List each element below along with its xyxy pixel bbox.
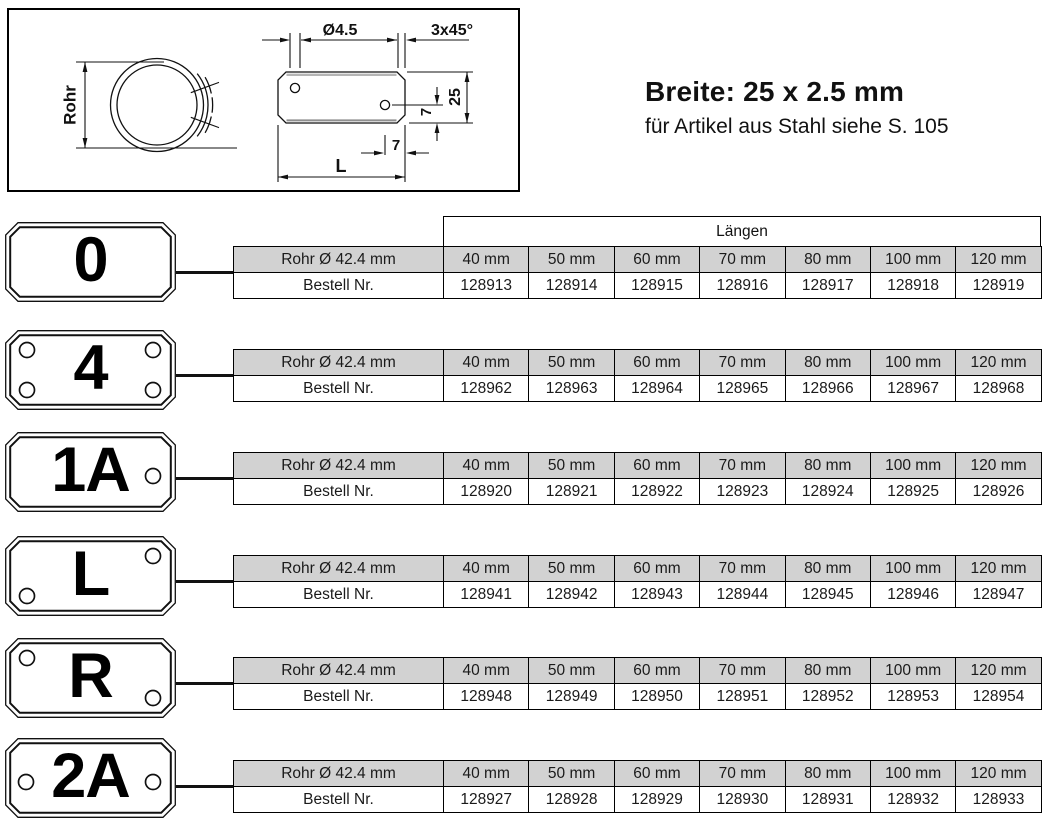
order-number: 128945: [785, 582, 870, 608]
order-table: Rohr Ø 42.4 mm 40 mm 50 mm 60 mm 70 mm 8…: [233, 657, 1042, 710]
arrow-up-icon: [465, 72, 470, 82]
connector-line: [176, 580, 233, 583]
length-column-header: 40 mm: [444, 761, 529, 787]
length-column-header: 50 mm: [529, 658, 614, 684]
arrow-down-icon: [435, 95, 440, 105]
order-number: 128962: [444, 376, 529, 402]
length-label: L: [336, 156, 347, 176]
plate-diagram: 2A: [5, 738, 176, 818]
order-number: 128941: [444, 582, 529, 608]
headline: Breite: 25 x 2.5 mm für Artikel aus Stah…: [645, 76, 949, 139]
order-number: 128942: [529, 582, 614, 608]
row-label-diameter: Rohr Ø 42.4 mm: [234, 453, 444, 479]
order-number: 128914: [529, 273, 614, 299]
clamp-band-arc: [197, 74, 208, 137]
row-label-diameter: Rohr Ø 42.4 mm: [234, 350, 444, 376]
order-number: 128926: [956, 479, 1041, 505]
plate-outline: [278, 72, 405, 123]
order-number: 128918: [870, 273, 955, 299]
order-table: Rohr Ø 42.4 mm 40 mm 50 mm 60 mm 70 mm 8…: [233, 246, 1042, 299]
order-number: 128953: [870, 684, 955, 710]
length-column-header: 80 mm: [785, 453, 870, 479]
order-number: 128964: [614, 376, 699, 402]
arrow-right-icon: [374, 151, 384, 156]
length-column-header: 40 mm: [444, 453, 529, 479]
arrow-left-icon: [406, 151, 416, 156]
row-label-order: Bestell Nr.: [234, 684, 444, 710]
length-column-header: 60 mm: [614, 350, 699, 376]
order-number: 128919: [956, 273, 1041, 299]
length-column-header: 60 mm: [614, 761, 699, 787]
order-number: 128948: [444, 684, 529, 710]
order-table: Rohr Ø 42.4 mm 40 mm 50 mm 60 mm 70 mm 8…: [233, 760, 1042, 813]
arrow-up-icon: [435, 123, 440, 133]
row-label-diameter: Rohr Ø 42.4 mm: [234, 761, 444, 787]
row-label-diameter: Rohr Ø 42.4 mm: [234, 556, 444, 582]
order-number: 128950: [614, 684, 699, 710]
length-column-header: 80 mm: [785, 247, 870, 273]
lengths-header: Längen: [443, 216, 1041, 247]
row-label-order: Bestell Nr.: [234, 273, 444, 299]
order-number: 128944: [700, 582, 785, 608]
plate-height-label: 25: [447, 88, 464, 106]
length-column-header: 70 mm: [700, 556, 785, 582]
length-column-header: 120 mm: [956, 247, 1041, 273]
connector-line: [176, 682, 233, 685]
length-column-header: 100 mm: [870, 350, 955, 376]
plate-label: 4: [5, 330, 176, 410]
order-number: 128968: [956, 376, 1041, 402]
length-column-header: 120 mm: [956, 658, 1041, 684]
row-label-order: Bestell Nr.: [234, 376, 444, 402]
plate-label: L: [5, 536, 176, 616]
order-number: 128930: [700, 787, 785, 813]
length-column-header: 80 mm: [785, 658, 870, 684]
plate-label: 0: [5, 222, 176, 302]
length-column-header: 70 mm: [700, 350, 785, 376]
page-subtitle: für Artikel aus Stahl siehe S. 105: [645, 115, 949, 139]
order-number: 128965: [700, 376, 785, 402]
order-number: 128921: [529, 479, 614, 505]
arrow-up-icon: [83, 62, 88, 72]
arrow-left-icon: [406, 38, 416, 43]
order-number: 128951: [700, 684, 785, 710]
length-column-header: 80 mm: [785, 761, 870, 787]
order-number: 128925: [870, 479, 955, 505]
order-number: 128932: [870, 787, 955, 813]
technical-drawing: Rohr Ø4.5 3x45° 25 7: [9, 10, 516, 188]
length-column-header: 100 mm: [870, 247, 955, 273]
order-number: 128931: [785, 787, 870, 813]
plate-diagram: L: [5, 536, 176, 616]
row-label-order: Bestell Nr.: [234, 787, 444, 813]
catalog-page: Rohr Ø4.5 3x45° 25 7: [0, 0, 1043, 830]
order-number: 128917: [785, 273, 870, 299]
order-table: Rohr Ø 42.4 mm 40 mm 50 mm 60 mm 70 mm 8…: [233, 452, 1042, 505]
order-number: 128927: [444, 787, 529, 813]
order-number: 128967: [870, 376, 955, 402]
order-number: 128952: [785, 684, 870, 710]
length-column-header: 40 mm: [444, 658, 529, 684]
length-column-header: 120 mm: [956, 761, 1041, 787]
hole-edge-distance-label: 7: [392, 137, 400, 154]
plate-diagram: 4: [5, 330, 176, 410]
row-label-order: Bestell Nr.: [234, 479, 444, 505]
length-column-header: 60 mm: [614, 556, 699, 582]
pipe-outer-circle: [111, 59, 204, 152]
length-column-header: 120 mm: [956, 556, 1041, 582]
plate-diagram: 1A: [5, 432, 176, 512]
length-column-header: 70 mm: [700, 761, 785, 787]
row-label-diameter: Rohr Ø 42.4 mm: [234, 658, 444, 684]
length-column-header: 80 mm: [785, 350, 870, 376]
plate-diagram: R: [5, 638, 176, 718]
hole-bottom-distance-label: 7: [418, 108, 435, 116]
plate-diagram: 0: [5, 222, 176, 302]
chamfer-label: 3x45°: [431, 22, 473, 39]
order-number: 128929: [614, 787, 699, 813]
order-number: 128920: [444, 479, 529, 505]
order-number: 128947: [956, 582, 1041, 608]
order-number: 128933: [956, 787, 1041, 813]
page-title: Breite: 25 x 2.5 mm: [645, 76, 949, 108]
arrow-right-icon: [387, 38, 397, 43]
order-number: 128928: [529, 787, 614, 813]
length-column-header: 100 mm: [870, 453, 955, 479]
connector-line: [176, 785, 233, 788]
length-column-header: 70 mm: [700, 453, 785, 479]
length-column-header: 100 mm: [870, 761, 955, 787]
length-column-header: 40 mm: [444, 350, 529, 376]
length-column-header: 50 mm: [529, 453, 614, 479]
length-column-header: 70 mm: [700, 658, 785, 684]
order-table: Rohr Ø 42.4 mm 40 mm 50 mm 60 mm 70 mm 8…: [233, 349, 1042, 402]
row-label-diameter: Rohr Ø 42.4 mm: [234, 247, 444, 273]
row-label-order: Bestell Nr.: [234, 582, 444, 608]
order-number: 128966: [785, 376, 870, 402]
connector-line: [176, 477, 233, 480]
plate-label: R: [5, 638, 176, 718]
length-column-header: 60 mm: [614, 658, 699, 684]
length-column-header: 50 mm: [529, 350, 614, 376]
order-number: 128913: [444, 273, 529, 299]
hole-diameter-label: Ø4.5: [323, 22, 358, 39]
order-number: 128915: [614, 273, 699, 299]
order-number: 128922: [614, 479, 699, 505]
pipe-dimension-label: Rohr: [60, 85, 79, 125]
length-column-header: 60 mm: [614, 453, 699, 479]
plate-label: 2A: [5, 738, 176, 818]
arrow-down-icon: [465, 113, 470, 123]
length-column-header: 120 mm: [956, 350, 1041, 376]
order-number: 128923: [700, 479, 785, 505]
plate-label: 1A: [5, 432, 176, 512]
order-number: 128916: [700, 273, 785, 299]
order-number: 128924: [785, 479, 870, 505]
order-number: 128963: [529, 376, 614, 402]
arrow-right-icon: [395, 175, 405, 180]
technical-drawing-box: Rohr Ø4.5 3x45° 25 7: [7, 8, 520, 192]
length-column-header: 40 mm: [444, 556, 529, 582]
order-table: Rohr Ø 42.4 mm 40 mm 50 mm 60 mm 70 mm 8…: [233, 555, 1042, 608]
order-number: 128954: [956, 684, 1041, 710]
pipe-inner-circle: [117, 65, 197, 145]
arrow-left-icon: [301, 38, 311, 43]
length-column-header: 50 mm: [529, 556, 614, 582]
length-column-header: 80 mm: [785, 556, 870, 582]
length-column-header: 70 mm: [700, 247, 785, 273]
arrow-right-icon: [280, 38, 290, 43]
length-column-header: 40 mm: [444, 247, 529, 273]
length-column-header: 100 mm: [870, 556, 955, 582]
length-column-header: 50 mm: [529, 761, 614, 787]
order-number: 128943: [614, 582, 699, 608]
length-column-header: 100 mm: [870, 658, 955, 684]
arrow-down-icon: [83, 138, 88, 148]
order-number: 128949: [529, 684, 614, 710]
arrow-left-icon: [278, 175, 288, 180]
length-column-header: 120 mm: [956, 453, 1041, 479]
length-column-header: 60 mm: [614, 247, 699, 273]
connector-line: [176, 271, 233, 274]
length-column-header: 50 mm: [529, 247, 614, 273]
connector-line: [176, 374, 233, 377]
order-number: 128946: [870, 582, 955, 608]
